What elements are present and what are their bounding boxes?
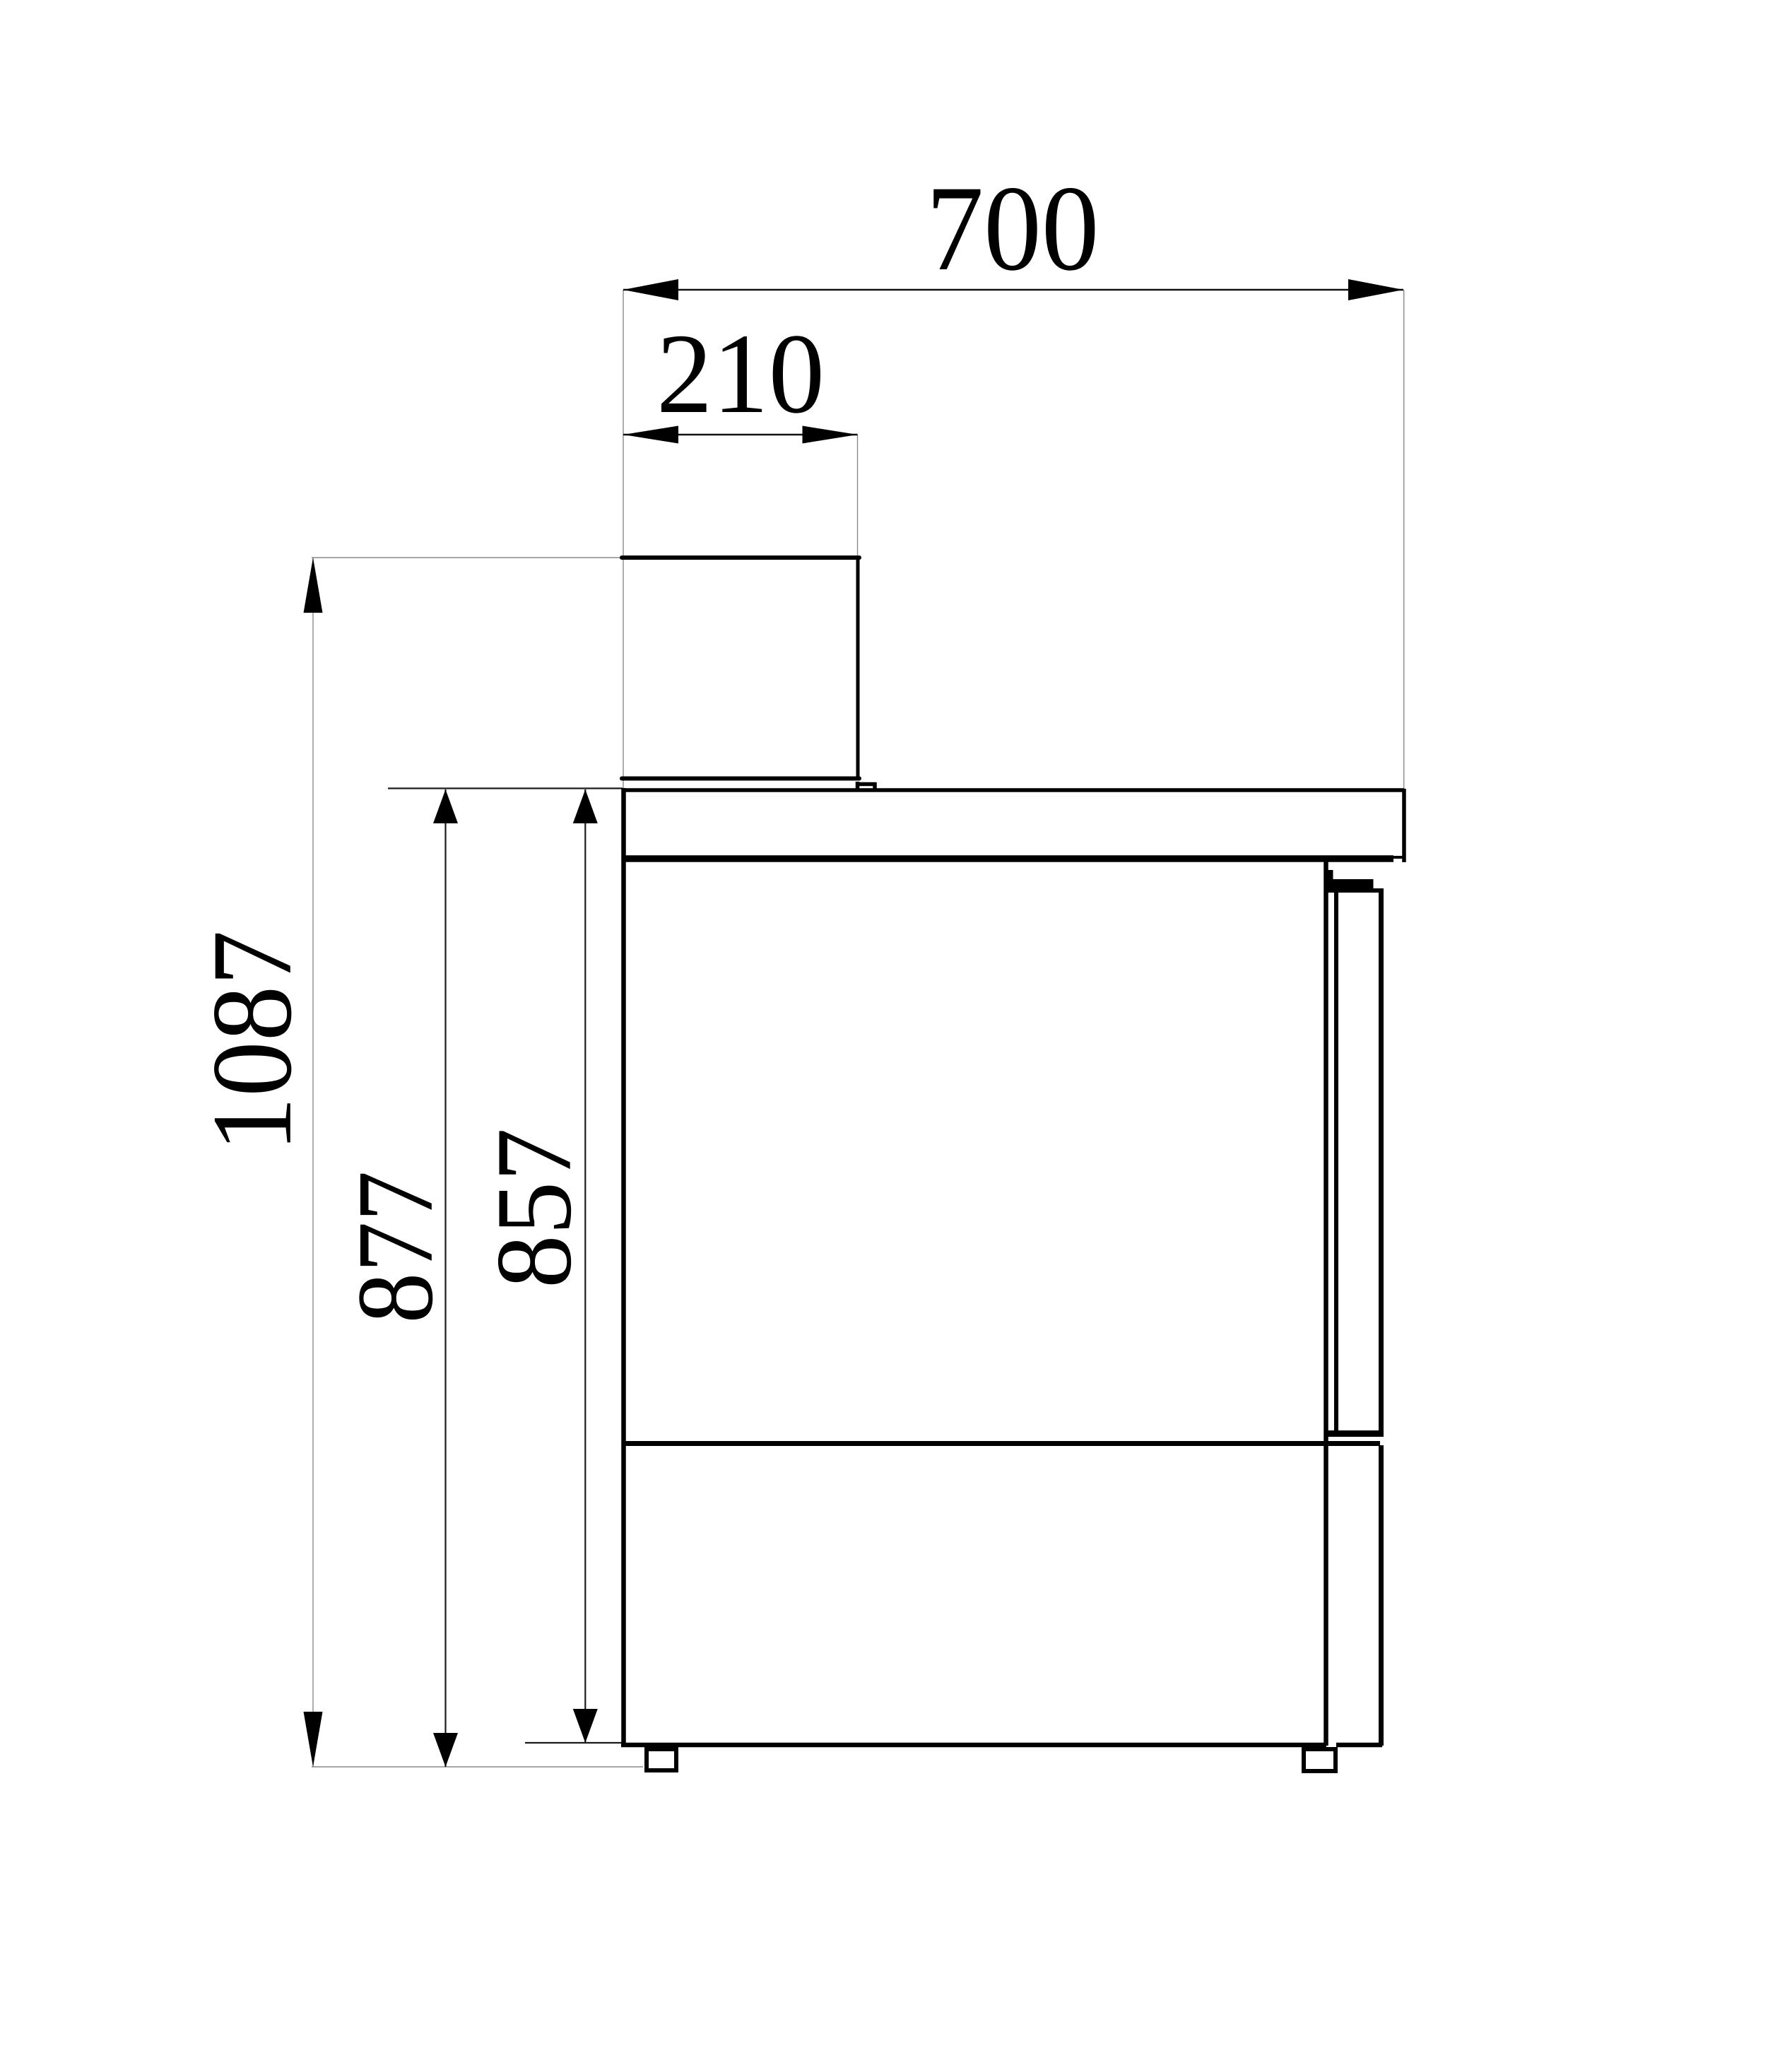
svg-text:877: 877 <box>336 1171 456 1324</box>
svg-text:700: 700 <box>926 161 1100 296</box>
svg-text:210: 210 <box>656 311 825 437</box>
svg-text:857: 857 <box>475 1128 594 1288</box>
svg-text:1087: 1087 <box>189 930 316 1152</box>
